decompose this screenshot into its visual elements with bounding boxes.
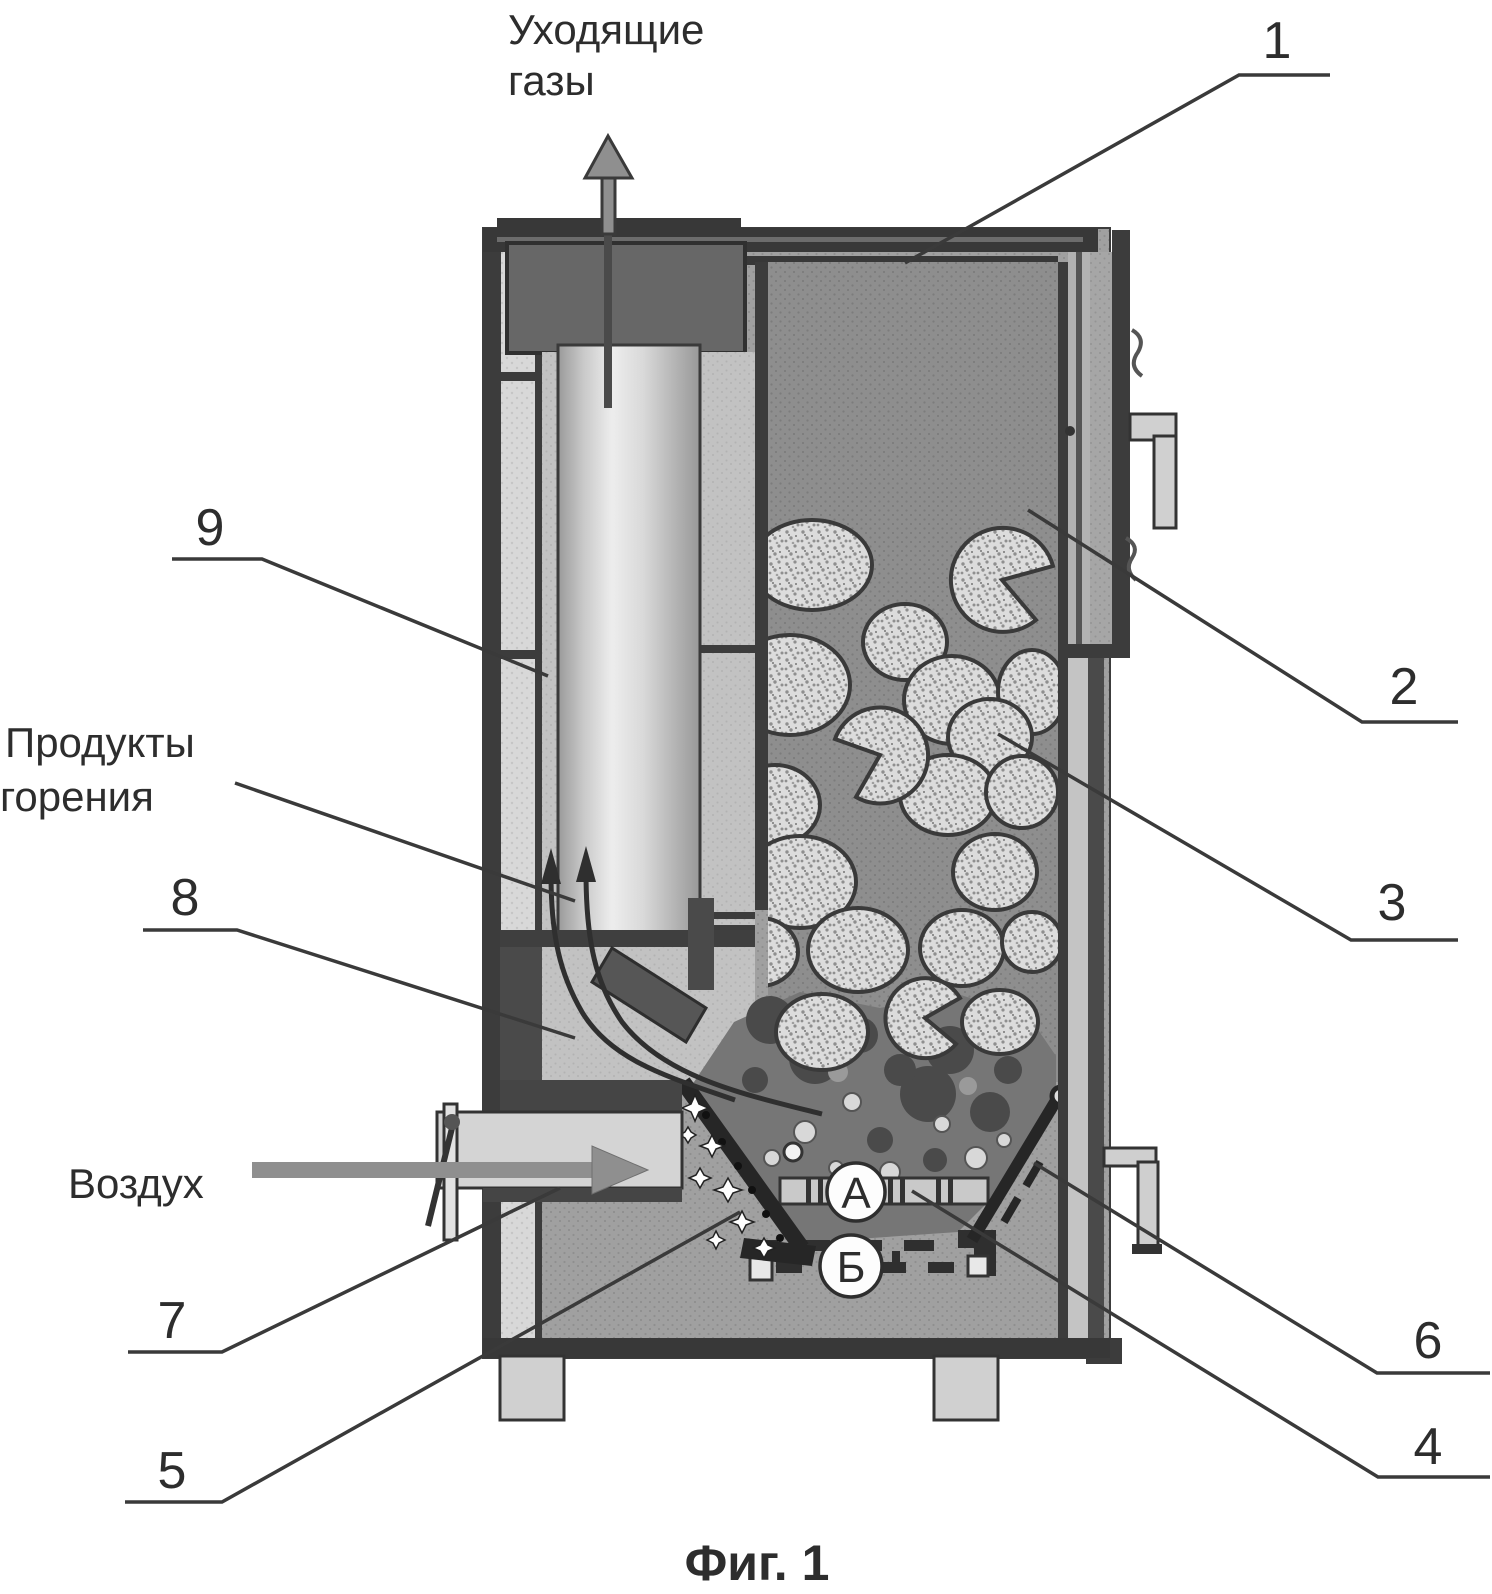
bottom-band [483, 1338, 1110, 1358]
combustion-products-line2: горения [0, 773, 154, 820]
leg [934, 1356, 998, 1420]
section-marker-b: Б [820, 1235, 882, 1297]
callout-6: 6 [1414, 1312, 1443, 1370]
section-marker-a-label: А [841, 1169, 871, 1218]
callout-2: 2 [1390, 658, 1419, 716]
callout-8: 8 [171, 869, 200, 927]
door-bottom-step [1068, 644, 1130, 658]
damper-knob [444, 1114, 460, 1130]
door-rivet [1065, 426, 1075, 436]
callout-4: 4 [1414, 1418, 1443, 1476]
duct-top-wall [500, 1080, 682, 1112]
lower-wall-light-strip [1068, 658, 1088, 1340]
combustion-products-line1: Продукты [5, 719, 195, 766]
lower-wall-dark-band [1088, 658, 1104, 1340]
callout-9: 9 [196, 499, 225, 557]
boiler-figure-svg: А Б 1 2 3 4 5 6 7 8 9 Уходящие газы Прод… [0, 0, 1492, 1594]
leg [500, 1356, 564, 1420]
callout-1: 1 [1263, 12, 1292, 70]
jacket-line-below-duct [535, 1202, 542, 1340]
heat-exchange-tube [558, 345, 700, 933]
jacket-weld-joint [501, 372, 535, 381]
label-air: Воздух [68, 1160, 204, 1207]
exhaust-gases-line1: Уходящие [508, 6, 704, 53]
callout-5: 5 [158, 1442, 187, 1500]
figure-caption: Фиг. 1 [685, 1535, 830, 1591]
loading-door [1065, 230, 1130, 658]
door-outer-face [1112, 230, 1130, 645]
spark-circle [784, 1143, 802, 1161]
smoke-collector [507, 243, 745, 353]
callout-3: 3 [1378, 874, 1407, 932]
channel-weld-joint [700, 645, 755, 653]
duct-bottom-wall [483, 1188, 682, 1202]
channel-floor [500, 930, 755, 947]
section-marker-b-label: Б [837, 1243, 866, 1292]
channel-strip-cap [688, 898, 714, 990]
exhaust-gases-line2: газы [508, 57, 595, 104]
patent-figure-page: А Б 1 2 3 4 5 6 7 8 9 Уходящие газы Прод… [0, 0, 1492, 1594]
callout-7: 7 [158, 1292, 187, 1350]
hopper-left-wall [755, 262, 768, 910]
water-jacket-below-duct [501, 1202, 535, 1340]
section-marker-a: А [827, 1163, 885, 1221]
